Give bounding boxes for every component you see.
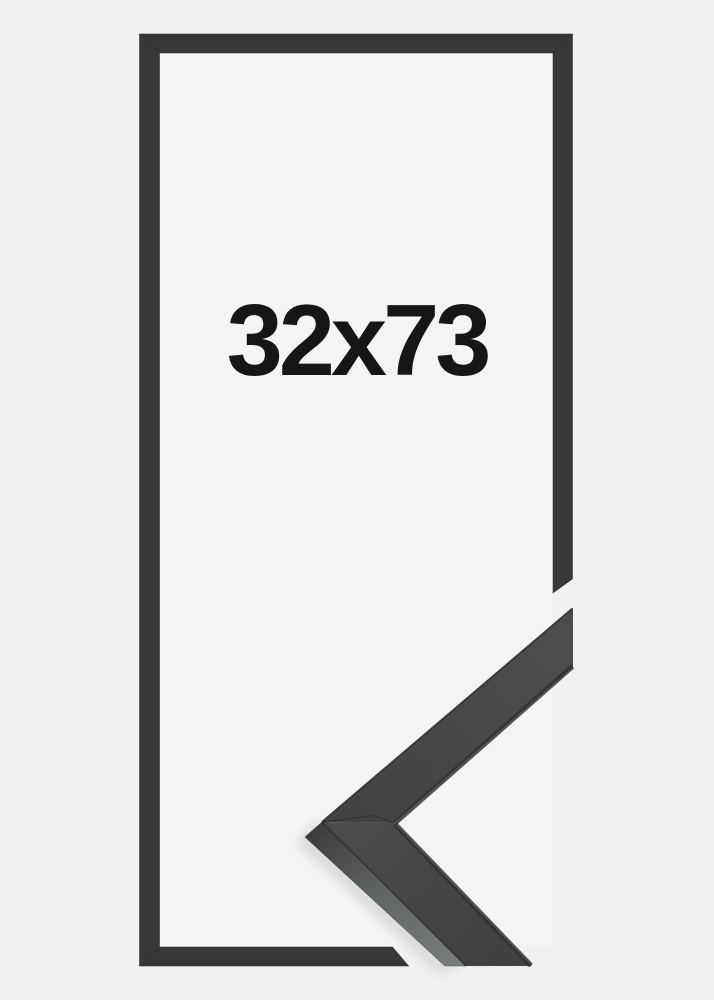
- frame-product-image: 32x73: [0, 0, 714, 1000]
- frame-graphic: [0, 0, 714, 1000]
- frame-size-label: 32x73: [0, 295, 714, 388]
